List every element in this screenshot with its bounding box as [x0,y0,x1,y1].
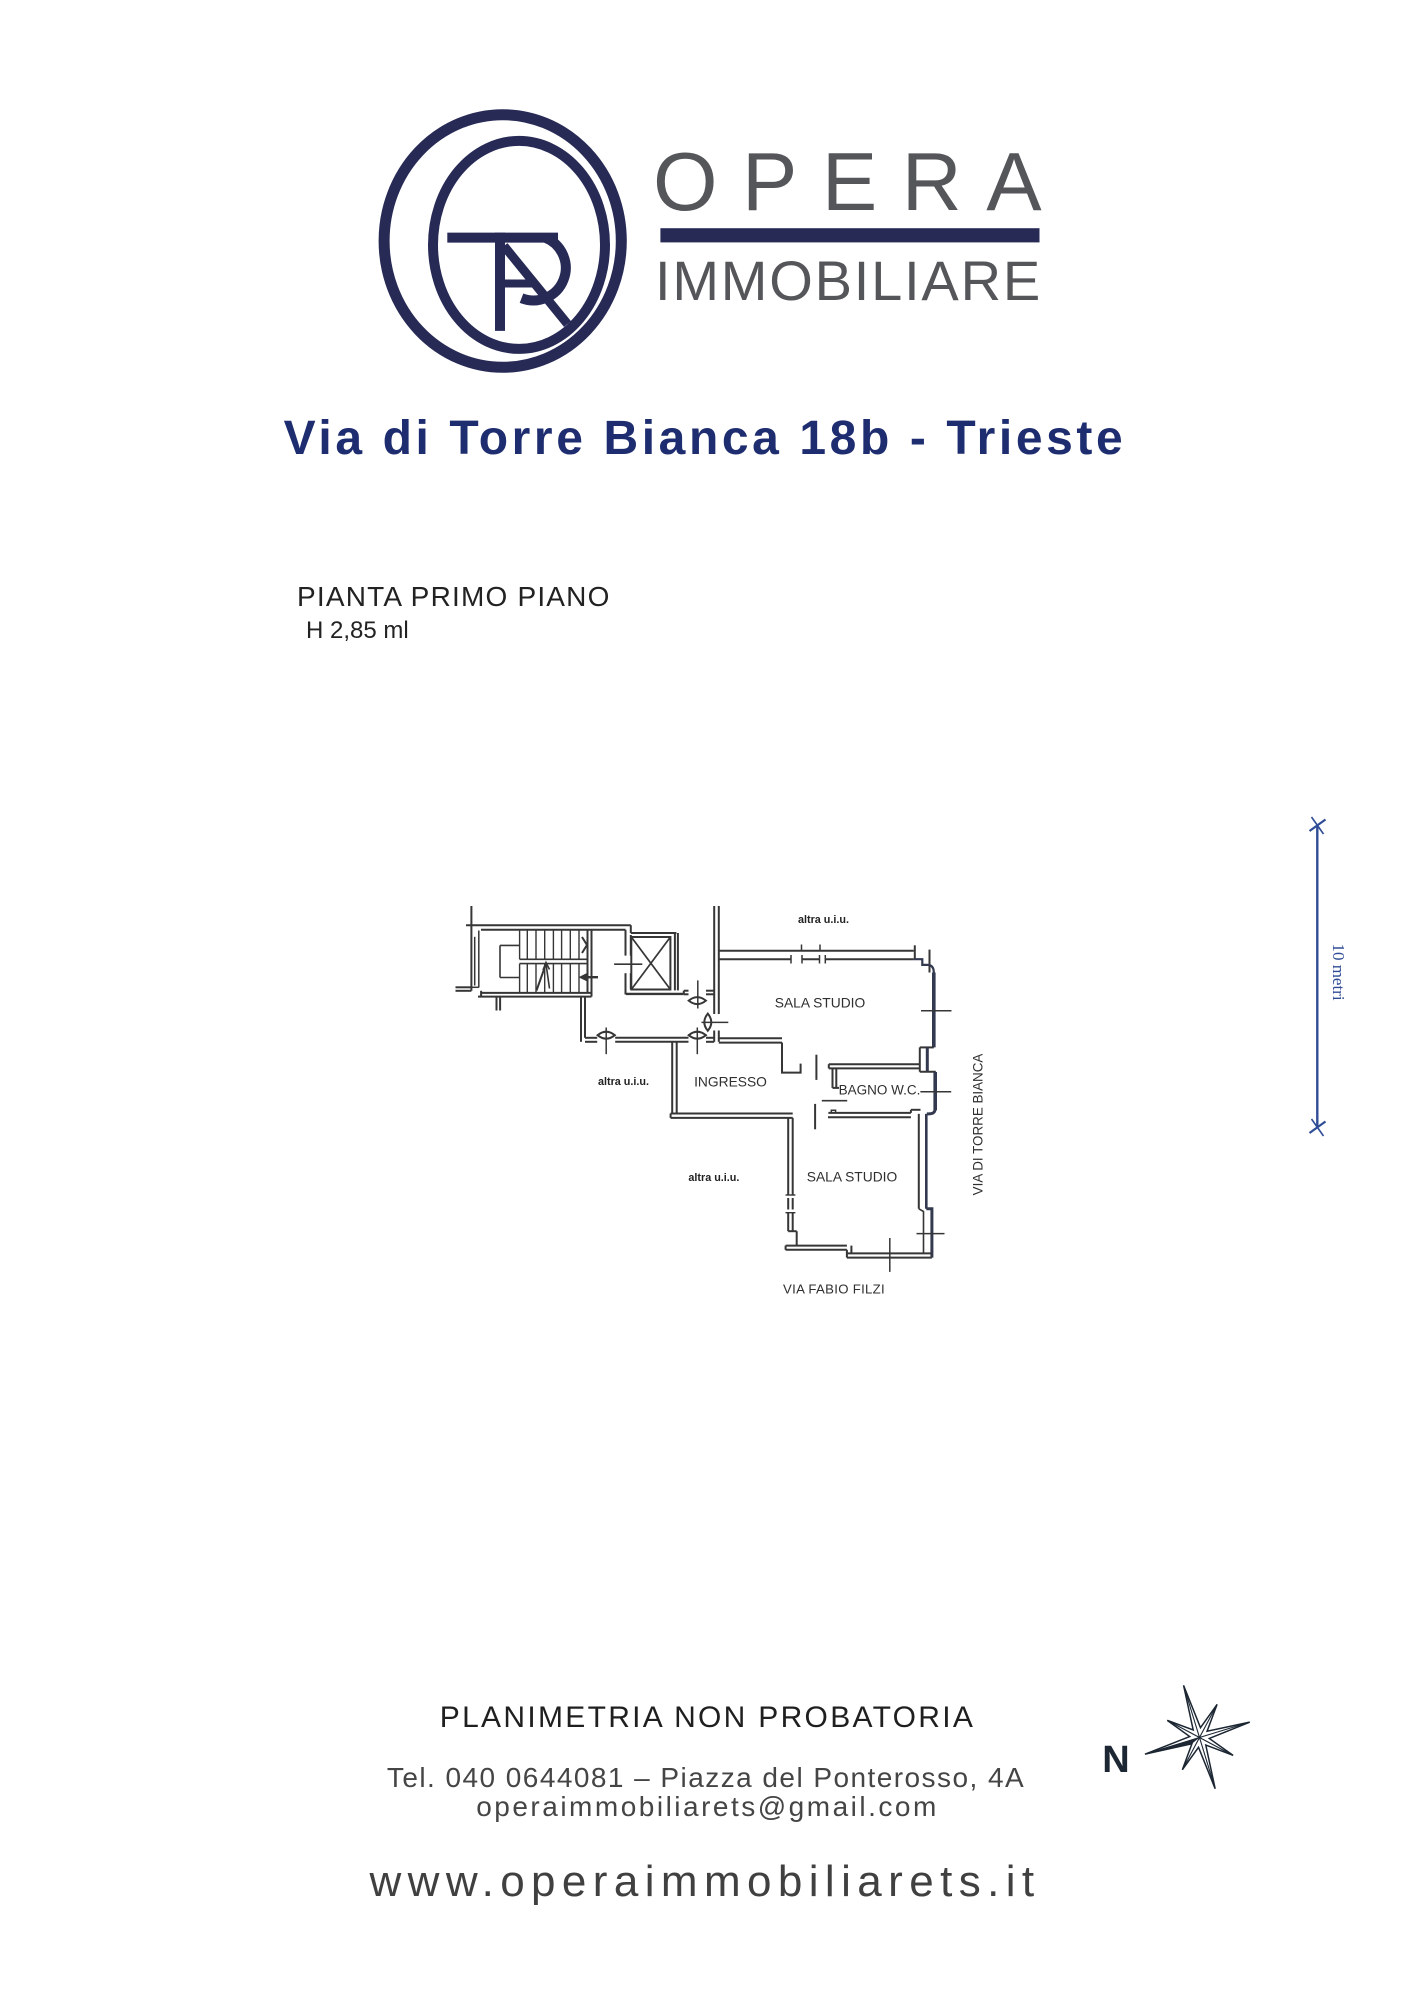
svg-text:10 metri: 10 metri [1329,943,1348,1000]
svg-text:SALA STUDIO: SALA STUDIO [807,1170,898,1185]
svg-text:INGRESSO: INGRESSO [694,1074,767,1089]
svg-text:SALA STUDIO: SALA STUDIO [775,996,866,1011]
svg-text:Tel. 040 0644081 – Piazza del: Tel. 040 0644081 – Piazza del Ponterosso… [387,1762,1025,1793]
svg-text:VIA FABIO FILZI: VIA FABIO FILZI [783,1281,885,1296]
svg-text:PIANTA PRIMO PIANO: PIANTA PRIMO PIANO [297,581,611,612]
svg-text:Via di Torre Bianca 18b - Trie: Via di Torre Bianca 18b - Trieste [284,412,1127,465]
svg-text:OPERA: OPERA [653,135,1066,228]
svg-text:BAGNO W.C.: BAGNO W.C. [839,1082,921,1097]
svg-text:operaimmobiliarets@gmail.com: operaimmobiliarets@gmail.com [476,1791,939,1822]
svg-text:PLANIMETRIA NON PROBATORIA: PLANIMETRIA NON PROBATORIA [440,1701,975,1734]
svg-text:altra u.i.u.: altra u.i.u. [688,1172,739,1184]
svg-text:altra u.i.u.: altra u.i.u. [798,914,849,926]
svg-text:N: N [1102,1739,1129,1781]
svg-text:IMMOBILIARE: IMMOBILIARE [655,249,1042,312]
svg-text:www.operaimmobiliarets.it: www.operaimmobiliarets.it [368,1857,1040,1906]
svg-text:altra u.i.u.: altra u.i.u. [598,1076,649,1088]
svg-text:VIA DI TORRE BIANCA: VIA DI TORRE BIANCA [971,1054,986,1196]
svg-text:H 2,85 ml: H 2,85 ml [306,617,409,644]
